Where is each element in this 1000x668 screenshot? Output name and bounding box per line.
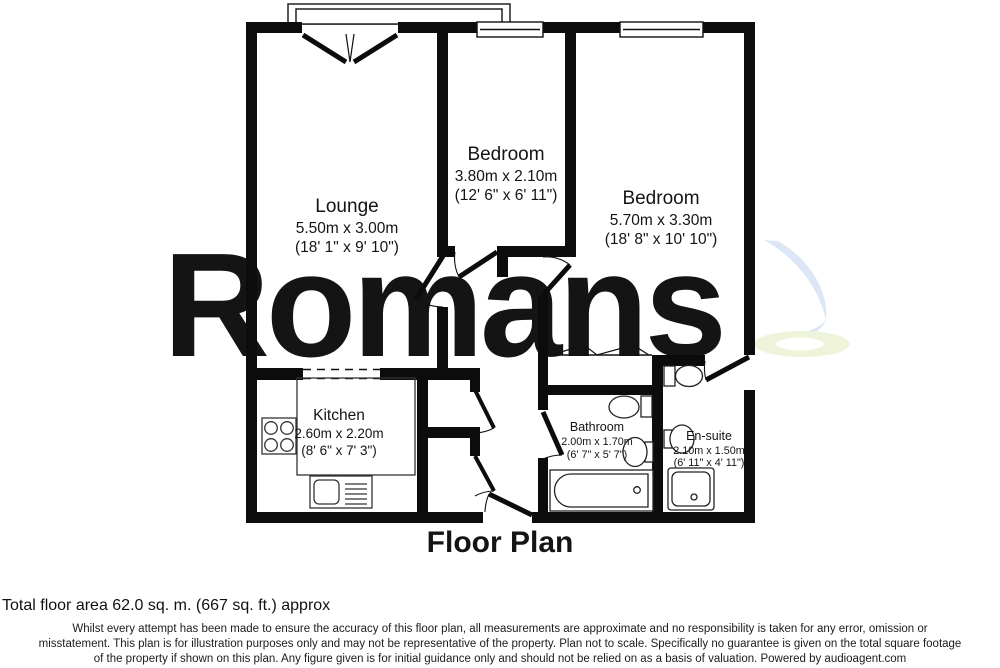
logo-ellipse-icon <box>754 331 850 357</box>
floor-plan-canvas: Romans <box>0 0 1000 580</box>
floor-plan: Romans <box>0 0 1000 580</box>
room-label-bedroom1-imperial: (12' 6" x 6' 11") <box>455 187 558 204</box>
cupboard-door-icon <box>475 456 494 491</box>
toilet-icon <box>609 396 652 418</box>
total-floor-area: Total floor area 62.0 sq. m. (667 sq. ft… <box>2 597 330 615</box>
bath-icon <box>550 470 653 511</box>
room-label-ensuite-imperial: (6' 11" x 4' 11") <box>674 457 745 469</box>
room-label-ensuite-metric: 2.10m x 1.50m <box>673 445 744 457</box>
shower-tray-icon <box>668 468 714 510</box>
room-label-bedroom2-name: Bedroom <box>622 188 699 209</box>
toilet-icon <box>664 366 703 387</box>
french-door-leaf-icon <box>303 35 346 62</box>
room-label-bathroom-name: Bathroom <box>570 420 624 434</box>
disclaimer-line: Whilst every attempt has been made to en… <box>0 622 1000 637</box>
room-label-kitchen-metric: 2.60m x 2.20m <box>294 426 383 441</box>
room-label-lounge-name: Lounge <box>315 196 378 217</box>
room-label-kitchen-imperial: (8' 6" x 7' 3") <box>301 443 377 458</box>
room-label-ensuite-name: En-suite <box>686 429 732 443</box>
kitchen-sink-icon <box>310 476 372 508</box>
logo-swoosh-icon <box>764 240 826 336</box>
bathroom-door-icon <box>543 412 562 455</box>
room-label-bedroom1-name: Bedroom <box>467 144 544 165</box>
plan-title: Floor Plan <box>427 526 574 559</box>
room-label-bedroom2-metric: 5.70m x 3.30m <box>610 212 713 229</box>
cupboard-door-icon <box>475 390 494 428</box>
disclaimer-line: of the property if shown on this plan. A… <box>0 652 1000 667</box>
room-label-bedroom2-imperial: (18' 8" x 10' 10") <box>605 231 718 248</box>
room-label-lounge-metric: 5.50m x 3.00m <box>296 220 399 237</box>
room-label-bathroom-metric: 2.00m x 1.70m <box>561 436 632 448</box>
room-label-bathroom-imperial: (6' 7" x 5' 7") <box>567 449 627 461</box>
room-label-lounge-imperial: (18' 1" x 9' 10") <box>295 239 399 256</box>
floor-plan-page: Romans <box>0 0 1000 668</box>
disclaimer-line: misstatement. This plan is for illustrat… <box>0 637 1000 652</box>
hob-icon <box>262 418 296 454</box>
room-label-kitchen-name: Kitchen <box>313 407 365 424</box>
french-door-leaf-icon <box>354 35 397 62</box>
balcony <box>288 4 510 24</box>
entry-door-icon <box>489 494 532 515</box>
room-label-bedroom1-metric: 3.80m x 2.10m <box>455 168 558 185</box>
disclaimer: Whilst every attempt has been made to en… <box>0 622 1000 667</box>
